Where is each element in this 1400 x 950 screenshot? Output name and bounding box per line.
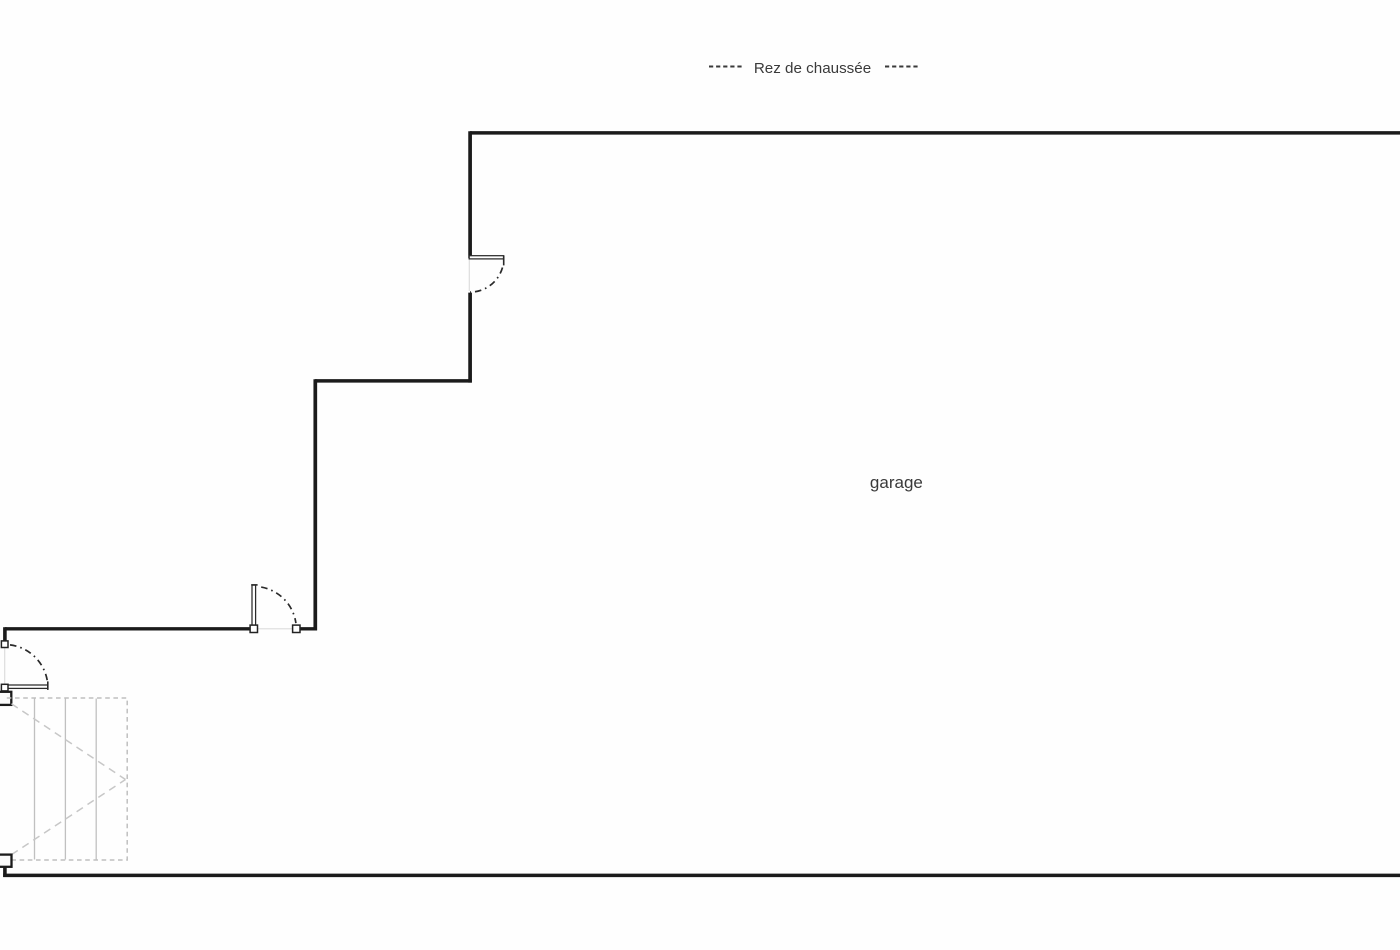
svg-text:garage: garage <box>870 473 923 492</box>
svg-text:Rez de chaussée: Rez de chaussée <box>754 60 871 77</box>
